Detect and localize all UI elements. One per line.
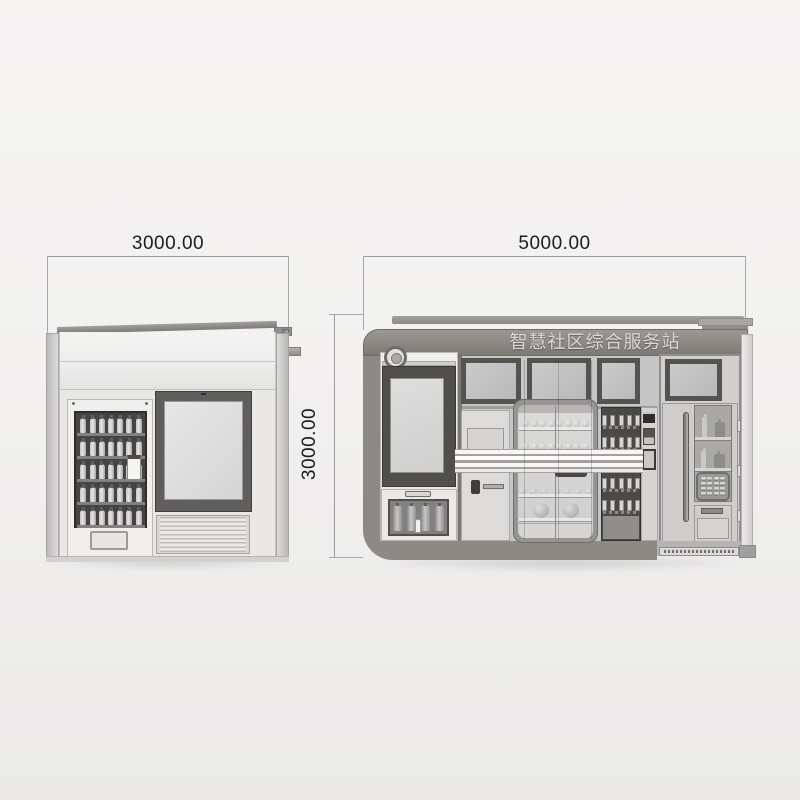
bottle <box>108 464 114 479</box>
bottle <box>99 487 105 502</box>
extension-line <box>745 256 746 318</box>
bottle <box>80 418 86 433</box>
bottle <box>117 487 123 502</box>
transom-window <box>597 358 640 404</box>
roof-cap <box>392 316 744 324</box>
locker-cell <box>714 477 719 481</box>
product-box <box>602 500 607 511</box>
glass-reflection-stripe <box>455 456 643 460</box>
product-box <box>610 478 615 489</box>
column-shelf <box>603 511 639 514</box>
bottle <box>99 464 105 479</box>
small-bottle <box>415 519 421 533</box>
bottle <box>90 487 96 502</box>
locker-cell <box>714 492 719 496</box>
side-pillar-left <box>46 333 59 558</box>
end-pilaster <box>741 334 753 556</box>
dimension-line-left-width <box>47 256 289 257</box>
dimension-label-front-width: 5000.00 <box>363 233 746 255</box>
figurine <box>702 417 707 437</box>
dispenser-handle <box>405 491 431 497</box>
glass-seam <box>591 360 592 540</box>
produce-item <box>573 420 580 427</box>
bottle <box>99 510 105 525</box>
bottle <box>117 510 123 525</box>
product-box <box>635 478 640 489</box>
bottle <box>99 441 105 456</box>
product-box <box>602 478 607 489</box>
receipt-slot <box>483 484 504 489</box>
locker-cell <box>720 492 725 496</box>
gas-cylinder <box>393 505 402 531</box>
sign-text: 智慧社区综合服务站 <box>505 329 685 356</box>
locker-cell <box>707 487 712 491</box>
bottle <box>136 418 142 433</box>
locker-cell <box>701 492 706 496</box>
product-box <box>610 437 615 448</box>
produce-item <box>548 420 555 427</box>
product-box <box>602 415 607 426</box>
transom-window <box>461 358 521 404</box>
card-reader <box>643 428 655 445</box>
product-box <box>619 437 624 448</box>
bottle <box>80 441 86 456</box>
screw-icon <box>145 402 148 405</box>
bottle <box>126 418 132 433</box>
glass-reflection-stripe <box>455 469 643 472</box>
produce-item <box>563 503 579 518</box>
locker-cell <box>720 487 725 491</box>
card-reader <box>471 480 480 494</box>
locker-cell <box>701 482 706 486</box>
bottle <box>117 418 123 433</box>
product-box <box>627 500 632 511</box>
door-handle <box>683 412 689 522</box>
extension-line <box>329 557 363 558</box>
drop-slot <box>701 508 723 514</box>
bottle-shelf-row <box>77 506 145 528</box>
column-shelf <box>603 426 639 429</box>
door-transom-window <box>665 359 722 401</box>
product-box <box>619 478 624 489</box>
column-shelf <box>603 489 639 492</box>
produce-item <box>531 420 538 427</box>
threshold-label-strip <box>659 547 739 556</box>
lightbox-screen <box>164 401 243 500</box>
locker-cell <box>720 482 725 486</box>
dimension-label-front-height: 3000.00 <box>299 394 319 494</box>
gas-cylinder <box>435 505 444 531</box>
locker-cell <box>701 477 706 481</box>
bottle-shelf-row <box>77 483 145 505</box>
extension-line <box>47 256 48 333</box>
product-row <box>604 434 638 448</box>
bottle <box>90 441 96 456</box>
product-box <box>619 415 624 426</box>
glass-seam <box>524 360 525 540</box>
threshold-micro-text <box>664 550 734 553</box>
locker-cell <box>720 477 725 481</box>
produce-item <box>582 420 589 427</box>
bottle <box>136 510 142 525</box>
screw-icon <box>72 402 75 405</box>
bottle <box>126 510 132 525</box>
bottle <box>136 441 142 456</box>
lightbox-top-tick <box>201 393 206 395</box>
transom-window <box>527 358 591 404</box>
bottle <box>126 441 132 456</box>
column-bottom-panel <box>603 516 639 539</box>
bottle <box>80 487 86 502</box>
info-screen <box>642 449 656 470</box>
locker-cell <box>707 477 712 481</box>
bottle <box>108 487 114 502</box>
drop-door <box>697 518 729 539</box>
bottle <box>136 487 142 502</box>
glass-reflection-stripe <box>455 450 643 454</box>
product-box <box>610 415 615 426</box>
bottle <box>90 510 96 525</box>
parcel-locker-grid <box>696 472 730 501</box>
produce-item <box>522 420 529 427</box>
payment-terminal <box>643 412 655 423</box>
bottle <box>99 418 105 433</box>
extension-line <box>288 256 289 327</box>
product-box <box>619 500 624 511</box>
bottle <box>80 510 86 525</box>
figurine <box>715 422 725 437</box>
fascia-seam-line <box>60 361 275 362</box>
bottle <box>117 441 123 456</box>
cabinet-shelf <box>695 437 731 441</box>
gas-cylinder <box>421 505 430 531</box>
dimension-label-left-width: 3000.00 <box>47 233 289 255</box>
locker-cell <box>701 487 706 491</box>
locker-cell <box>714 487 719 491</box>
figurine <box>701 451 706 468</box>
bottle-shelf-row <box>77 414 145 436</box>
bottle <box>117 464 123 479</box>
product-box <box>627 478 632 489</box>
bottle <box>80 464 86 479</box>
extension-line <box>329 314 363 315</box>
dispense-tray <box>90 531 128 550</box>
side-pillar-right <box>276 333 289 558</box>
bottle <box>108 441 114 456</box>
product-box <box>627 437 632 448</box>
product-box <box>635 415 640 426</box>
figurine <box>714 454 725 468</box>
dimension-line-front-height <box>334 314 335 557</box>
bottle <box>126 487 132 502</box>
bottle <box>108 418 114 433</box>
product-box <box>627 415 632 426</box>
glass-reflection-stripe <box>455 463 643 467</box>
bottle <box>108 510 114 525</box>
kiosk-touchscreen <box>390 378 444 473</box>
technical-drawing-canvas: 3000.00 5000.00 3000.00 <box>0 0 800 800</box>
produce-item <box>539 420 546 427</box>
louver-vent <box>160 517 246 552</box>
extension-line <box>363 256 364 330</box>
product-box <box>635 437 640 448</box>
locker-cell <box>714 482 719 486</box>
product-row <box>604 497 638 511</box>
base-step <box>739 545 756 558</box>
product-box <box>635 500 640 511</box>
bottle <box>90 464 96 479</box>
locker-cell <box>707 492 712 496</box>
dimension-line-front-width <box>363 256 746 257</box>
glass-seam <box>558 360 559 540</box>
produce-item <box>533 503 549 518</box>
bottle <box>90 418 96 433</box>
product-box <box>610 500 615 511</box>
cornice-upper <box>698 318 753 326</box>
product-row <box>604 475 638 489</box>
produce-item <box>565 420 572 427</box>
product-box <box>602 437 607 448</box>
product-row <box>604 412 638 426</box>
locker-cell <box>707 482 712 486</box>
payment-module <box>127 455 141 480</box>
